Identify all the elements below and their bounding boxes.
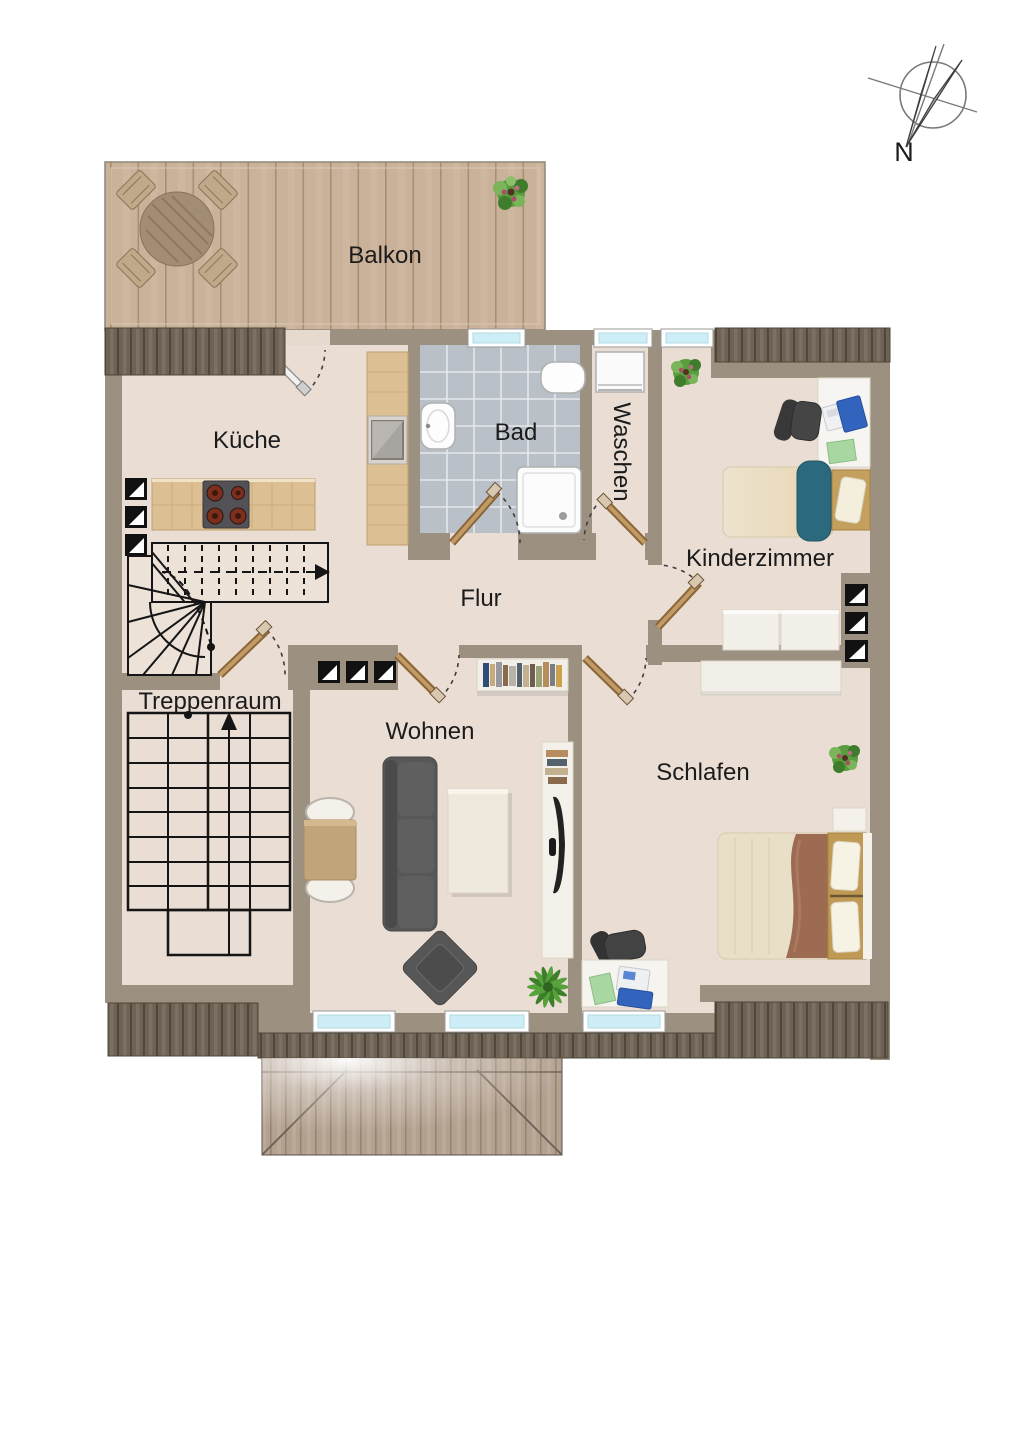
wall-waschen-bottom-corner (645, 533, 662, 560)
balcony: Balkon (105, 162, 545, 330)
bathroom-label: Bad (495, 419, 538, 446)
nightstand-icon (833, 808, 866, 831)
wall-bottom-schlafen (700, 985, 870, 1002)
wall-waschen-kinderzimmer (648, 345, 662, 565)
skylight-icon-wohnen-2 (346, 661, 368, 683)
wall-bad-bottom-left (408, 533, 450, 560)
kids-dresser-icon (723, 610, 839, 650)
hallway-bookshelf (477, 659, 568, 696)
toilet-icon (541, 362, 585, 393)
skylight-icon-left-2 (125, 506, 147, 528)
window-wohnen-1 (313, 1011, 395, 1032)
skylight-icon-left-1 (125, 478, 147, 500)
window-bad (468, 329, 525, 347)
kitchen-sink-icon (368, 416, 407, 464)
roof-bottom-right (715, 1002, 888, 1058)
kids-room-label: Kinderzimmer (686, 545, 834, 572)
wall-wohnen-top (459, 645, 573, 658)
upper-stair-flight (146, 543, 330, 606)
roof-bottom-left (108, 1003, 258, 1056)
stairwell-label: Treppenraum (138, 688, 281, 715)
bathroom: Bad (420, 345, 585, 543)
washbasin-icon (421, 403, 455, 449)
roof-bottom-middle (258, 1033, 715, 1058)
wardrobe-icon (701, 661, 841, 695)
window-kinderzimmer (661, 329, 713, 347)
roof-top-right (715, 328, 890, 362)
tv-board-icon (542, 742, 573, 958)
skylight-icon-kind-1 (845, 584, 868, 606)
dining-set (304, 798, 356, 902)
double-bed-icon (718, 833, 872, 959)
washing-machine-icon (596, 352, 644, 392)
hallway-label: Flur (460, 585, 501, 612)
living-room-label: Wohnen (386, 718, 475, 745)
shower-icon (517, 467, 581, 533)
window-wohnen-2 (445, 1011, 529, 1032)
skylight-icon-wohnen-3 (374, 661, 396, 683)
bedroom-label: Schlafen (656, 759, 749, 786)
wall-bottom-step (258, 985, 293, 1035)
wall-left (105, 330, 122, 1003)
compass-rose-icon: N (868, 44, 977, 167)
window-schlafen (583, 1011, 665, 1032)
skylight-icon-kind-3 (845, 640, 868, 662)
skylight-icon-left-3 (125, 534, 147, 556)
floor-plan-page: N Balkon (0, 0, 1018, 1440)
balcony-label: Balkon (348, 242, 421, 269)
compass-north-label: N (894, 137, 914, 167)
skylight-icon-kind-2 (845, 612, 868, 634)
kitchen-sink-counter (367, 352, 408, 545)
kids-bed-icon (723, 461, 870, 541)
wall-right (870, 330, 890, 1060)
coffee-table-icon (448, 789, 512, 897)
laundry-label: Waschen (608, 402, 635, 501)
stove-icon (203, 481, 249, 528)
skylight-icon-wohnen-1 (318, 661, 340, 683)
roof-top-left (105, 328, 285, 375)
wall-kueche-bad (408, 345, 420, 545)
floor-plan-drawing: N Balkon (0, 0, 1018, 1440)
kitchen-label: Küche (213, 427, 281, 454)
window-waschen (594, 329, 652, 347)
wall-bad-bottom-right (518, 533, 596, 560)
entrance-dormer-roof (262, 1058, 562, 1155)
